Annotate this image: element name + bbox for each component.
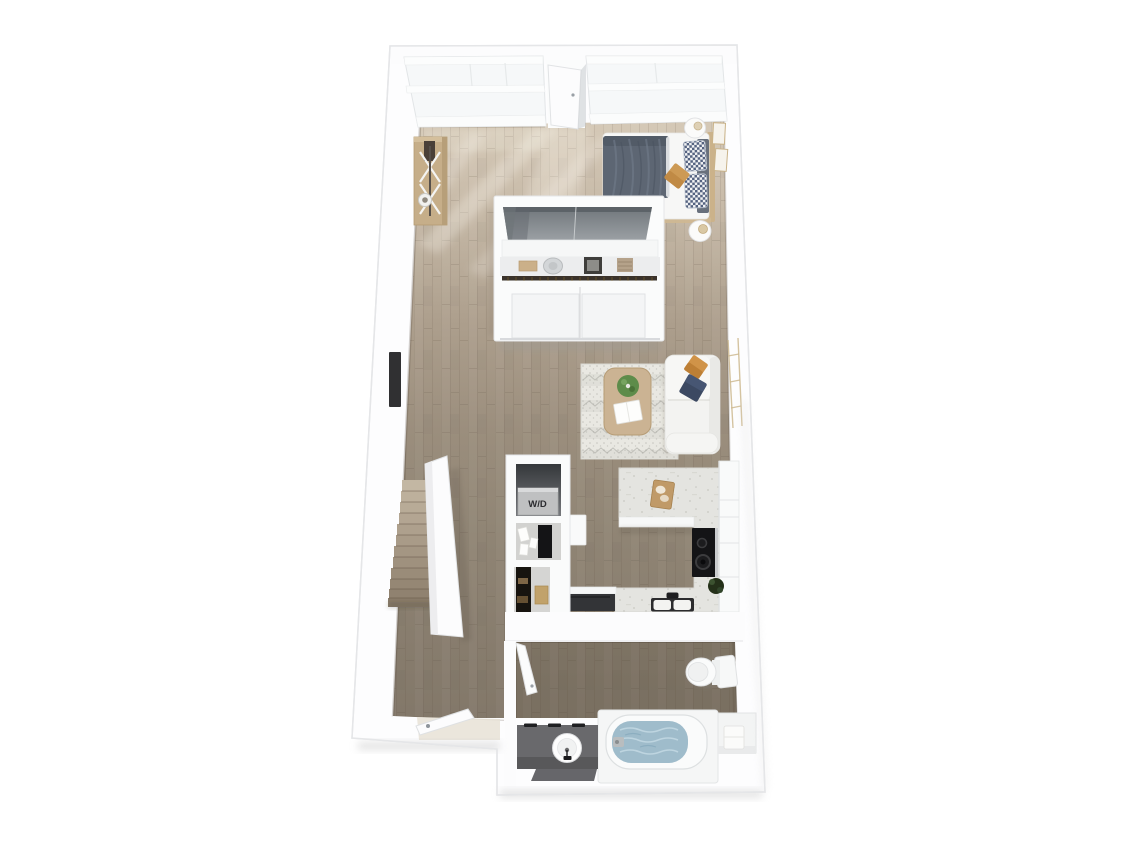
svg-text:W/D: W/D: [528, 499, 547, 510]
